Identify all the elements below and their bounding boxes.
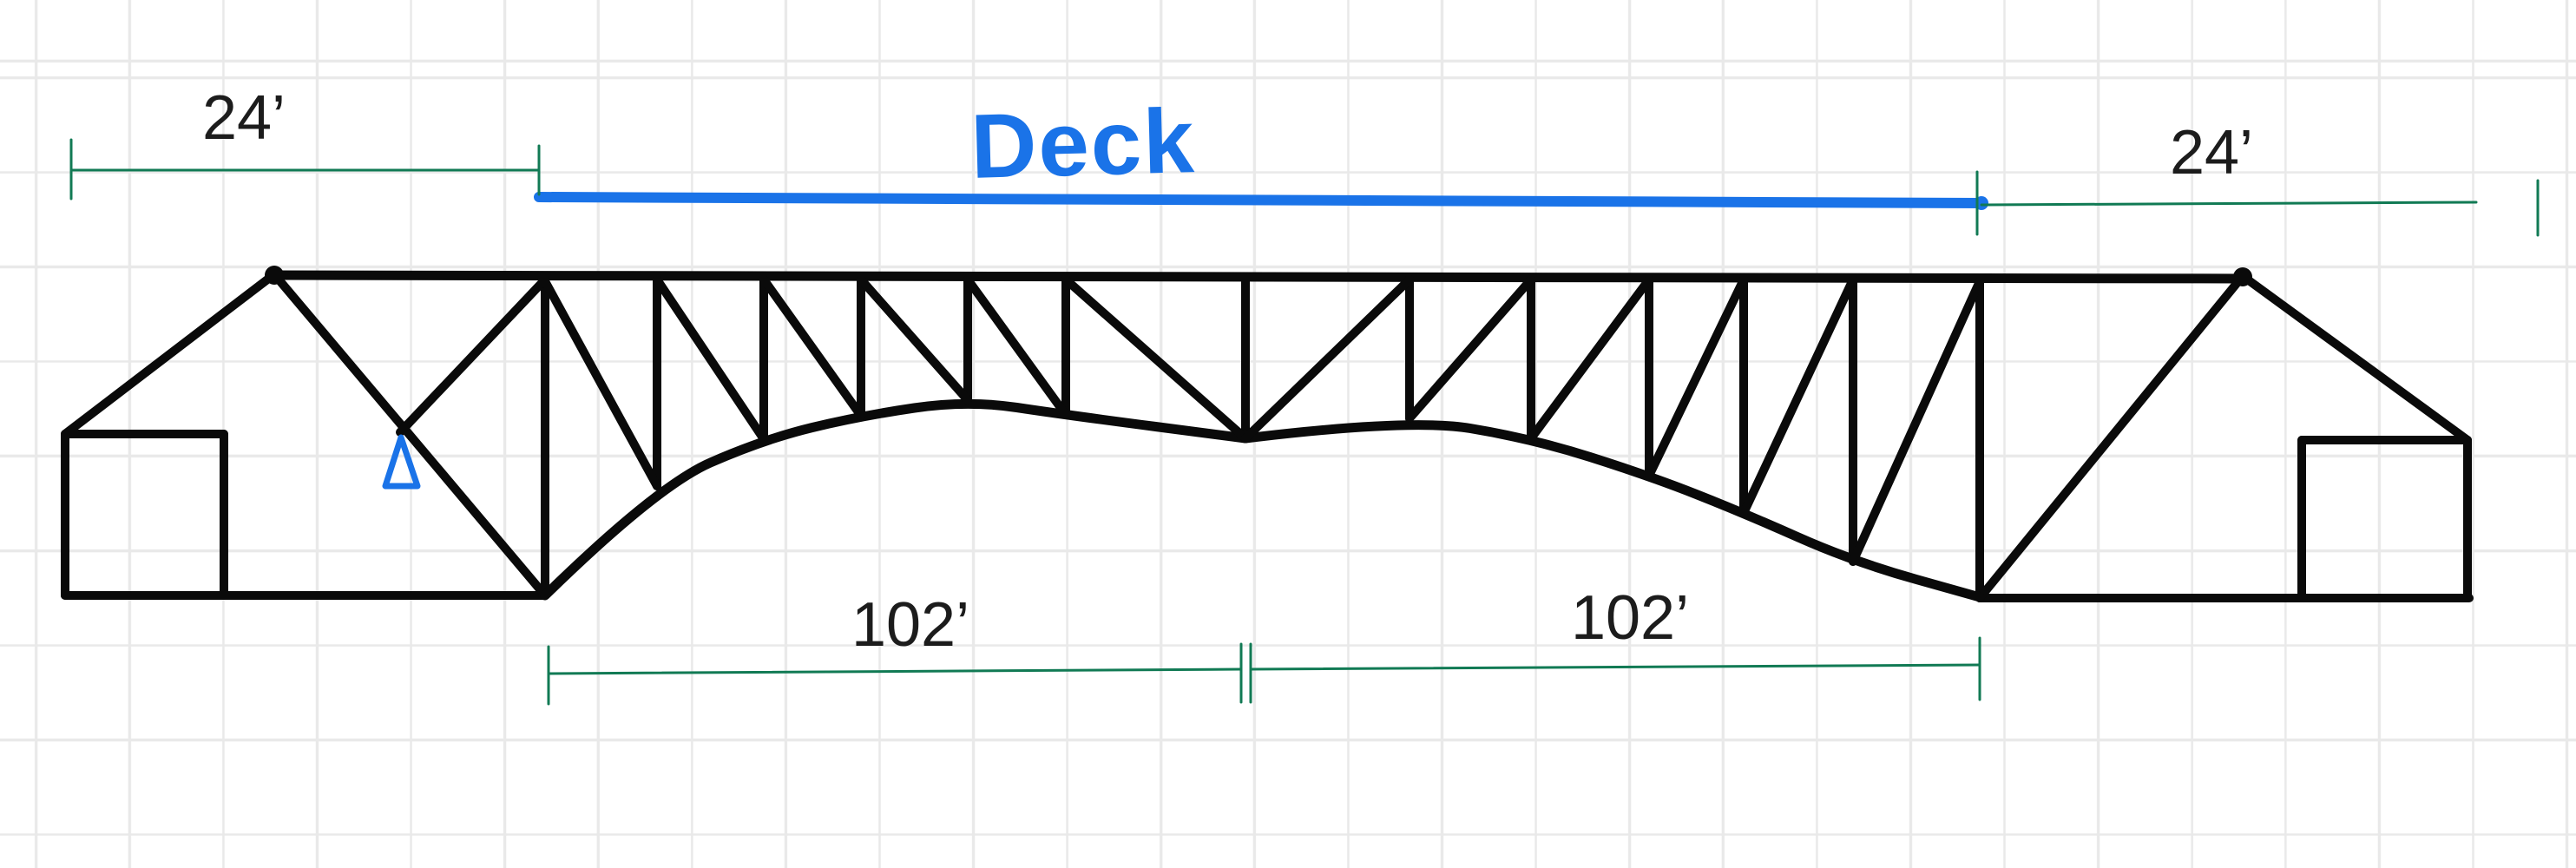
dimension-line-right-span: [1251, 665, 1980, 669]
truss-diagonal-1: [545, 281, 657, 486]
deck-line: [539, 197, 1981, 203]
truss-top-chord: [274, 275, 2243, 279]
right-span-dimension-label: 102’: [1571, 587, 1689, 649]
left-offset-dimension-label: 24’: [202, 87, 286, 149]
truss-arch-left: [545, 404, 1245, 595]
whiteboard-canvas: Deck 24’ 24’ 102’ 102’: [0, 0, 2576, 868]
right-offset-dimension-label: 24’: [2170, 122, 2253, 184]
truss-node-dot-1: [265, 266, 284, 285]
truss-diagonal-4: [861, 279, 968, 400]
truss-diagonal-2: [657, 279, 764, 439]
truss-member-left-slope: [65, 274, 274, 434]
truss-diagonal-5: [968, 279, 1066, 415]
dimension-line-left-span: [549, 669, 1241, 674]
truss-member-right-slope: [2243, 276, 2468, 440]
truss-member-left-short-diagonal: [400, 279, 545, 432]
truss-diagonal-10: [1649, 279, 1744, 476]
left-span-dimension-label: 102’: [851, 594, 969, 656]
deck-label: Deck: [969, 95, 1197, 193]
truss-arch-right: [1245, 425, 1980, 597]
truss-diagonal-9: [1531, 279, 1649, 438]
truss-member-right-main-diagonal: [1980, 276, 2243, 598]
truss-diagonal-3: [764, 279, 861, 416]
dimension-line-right-offset: [1981, 202, 2476, 205]
truss-node-dot-2: [2233, 267, 2252, 286]
truss-diagonal-11: [1744, 279, 1853, 513]
truss-diagonal-12: [1853, 281, 1980, 562]
truss-diagonal-8: [1410, 279, 1531, 418]
truss-diagonal-7: [1245, 279, 1410, 438]
